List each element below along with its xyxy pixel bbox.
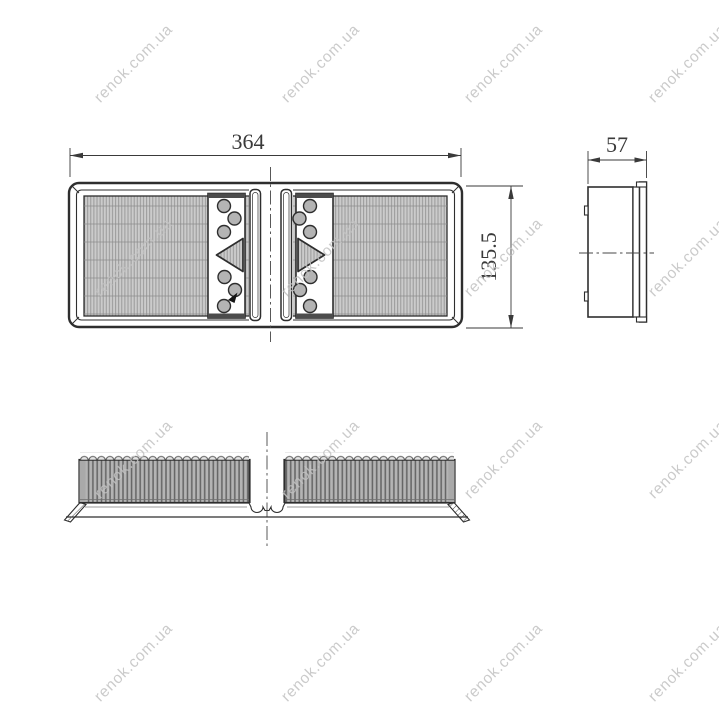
dim-height: 135.5: [466, 186, 523, 328]
filter-drawing-svg: 364 135.5 57: [0, 0, 719, 719]
side-flange-plate: [640, 182, 647, 322]
center-hinge-strip: [249, 189, 293, 321]
side-mid-plate: [633, 187, 640, 317]
base-end-cap-right: [448, 503, 470, 523]
dim-depth-label: 57: [606, 132, 628, 157]
pleat-end-fold-left: [80, 460, 86, 502]
pleat-tips-left: [80, 453, 249, 460]
dim-width-label: 364: [232, 129, 265, 154]
arrowhead-right: [635, 157, 647, 162]
top-view: [69, 167, 462, 342]
side-clip-top: [585, 206, 589, 215]
dim-width: 364: [70, 129, 461, 177]
pleat-tips-right: [285, 453, 454, 460]
base-end-cap-left: [65, 503, 87, 523]
pleat-block-left: [79, 460, 250, 503]
arrowhead-up: [508, 186, 513, 199]
dim-height-label: 135.5: [476, 232, 501, 282]
front-view: [65, 432, 470, 548]
side-flange-cap-top: [637, 182, 647, 187]
arrowhead-left: [588, 157, 600, 162]
side-view: [579, 182, 654, 322]
side-flange-cap-bottom: [637, 317, 647, 322]
pleat-block-right: [284, 460, 455, 503]
side-body: [588, 187, 633, 317]
dim-depth: 57: [588, 132, 647, 184]
technical-drawing: 364 135.5 57: [0, 0, 719, 719]
arrowhead-right: [448, 153, 461, 158]
pleat-end-fold-right: [449, 460, 455, 502]
arrowhead-down: [508, 315, 513, 328]
side-clip-bottom: [585, 292, 589, 301]
arrowhead-left: [70, 153, 83, 158]
